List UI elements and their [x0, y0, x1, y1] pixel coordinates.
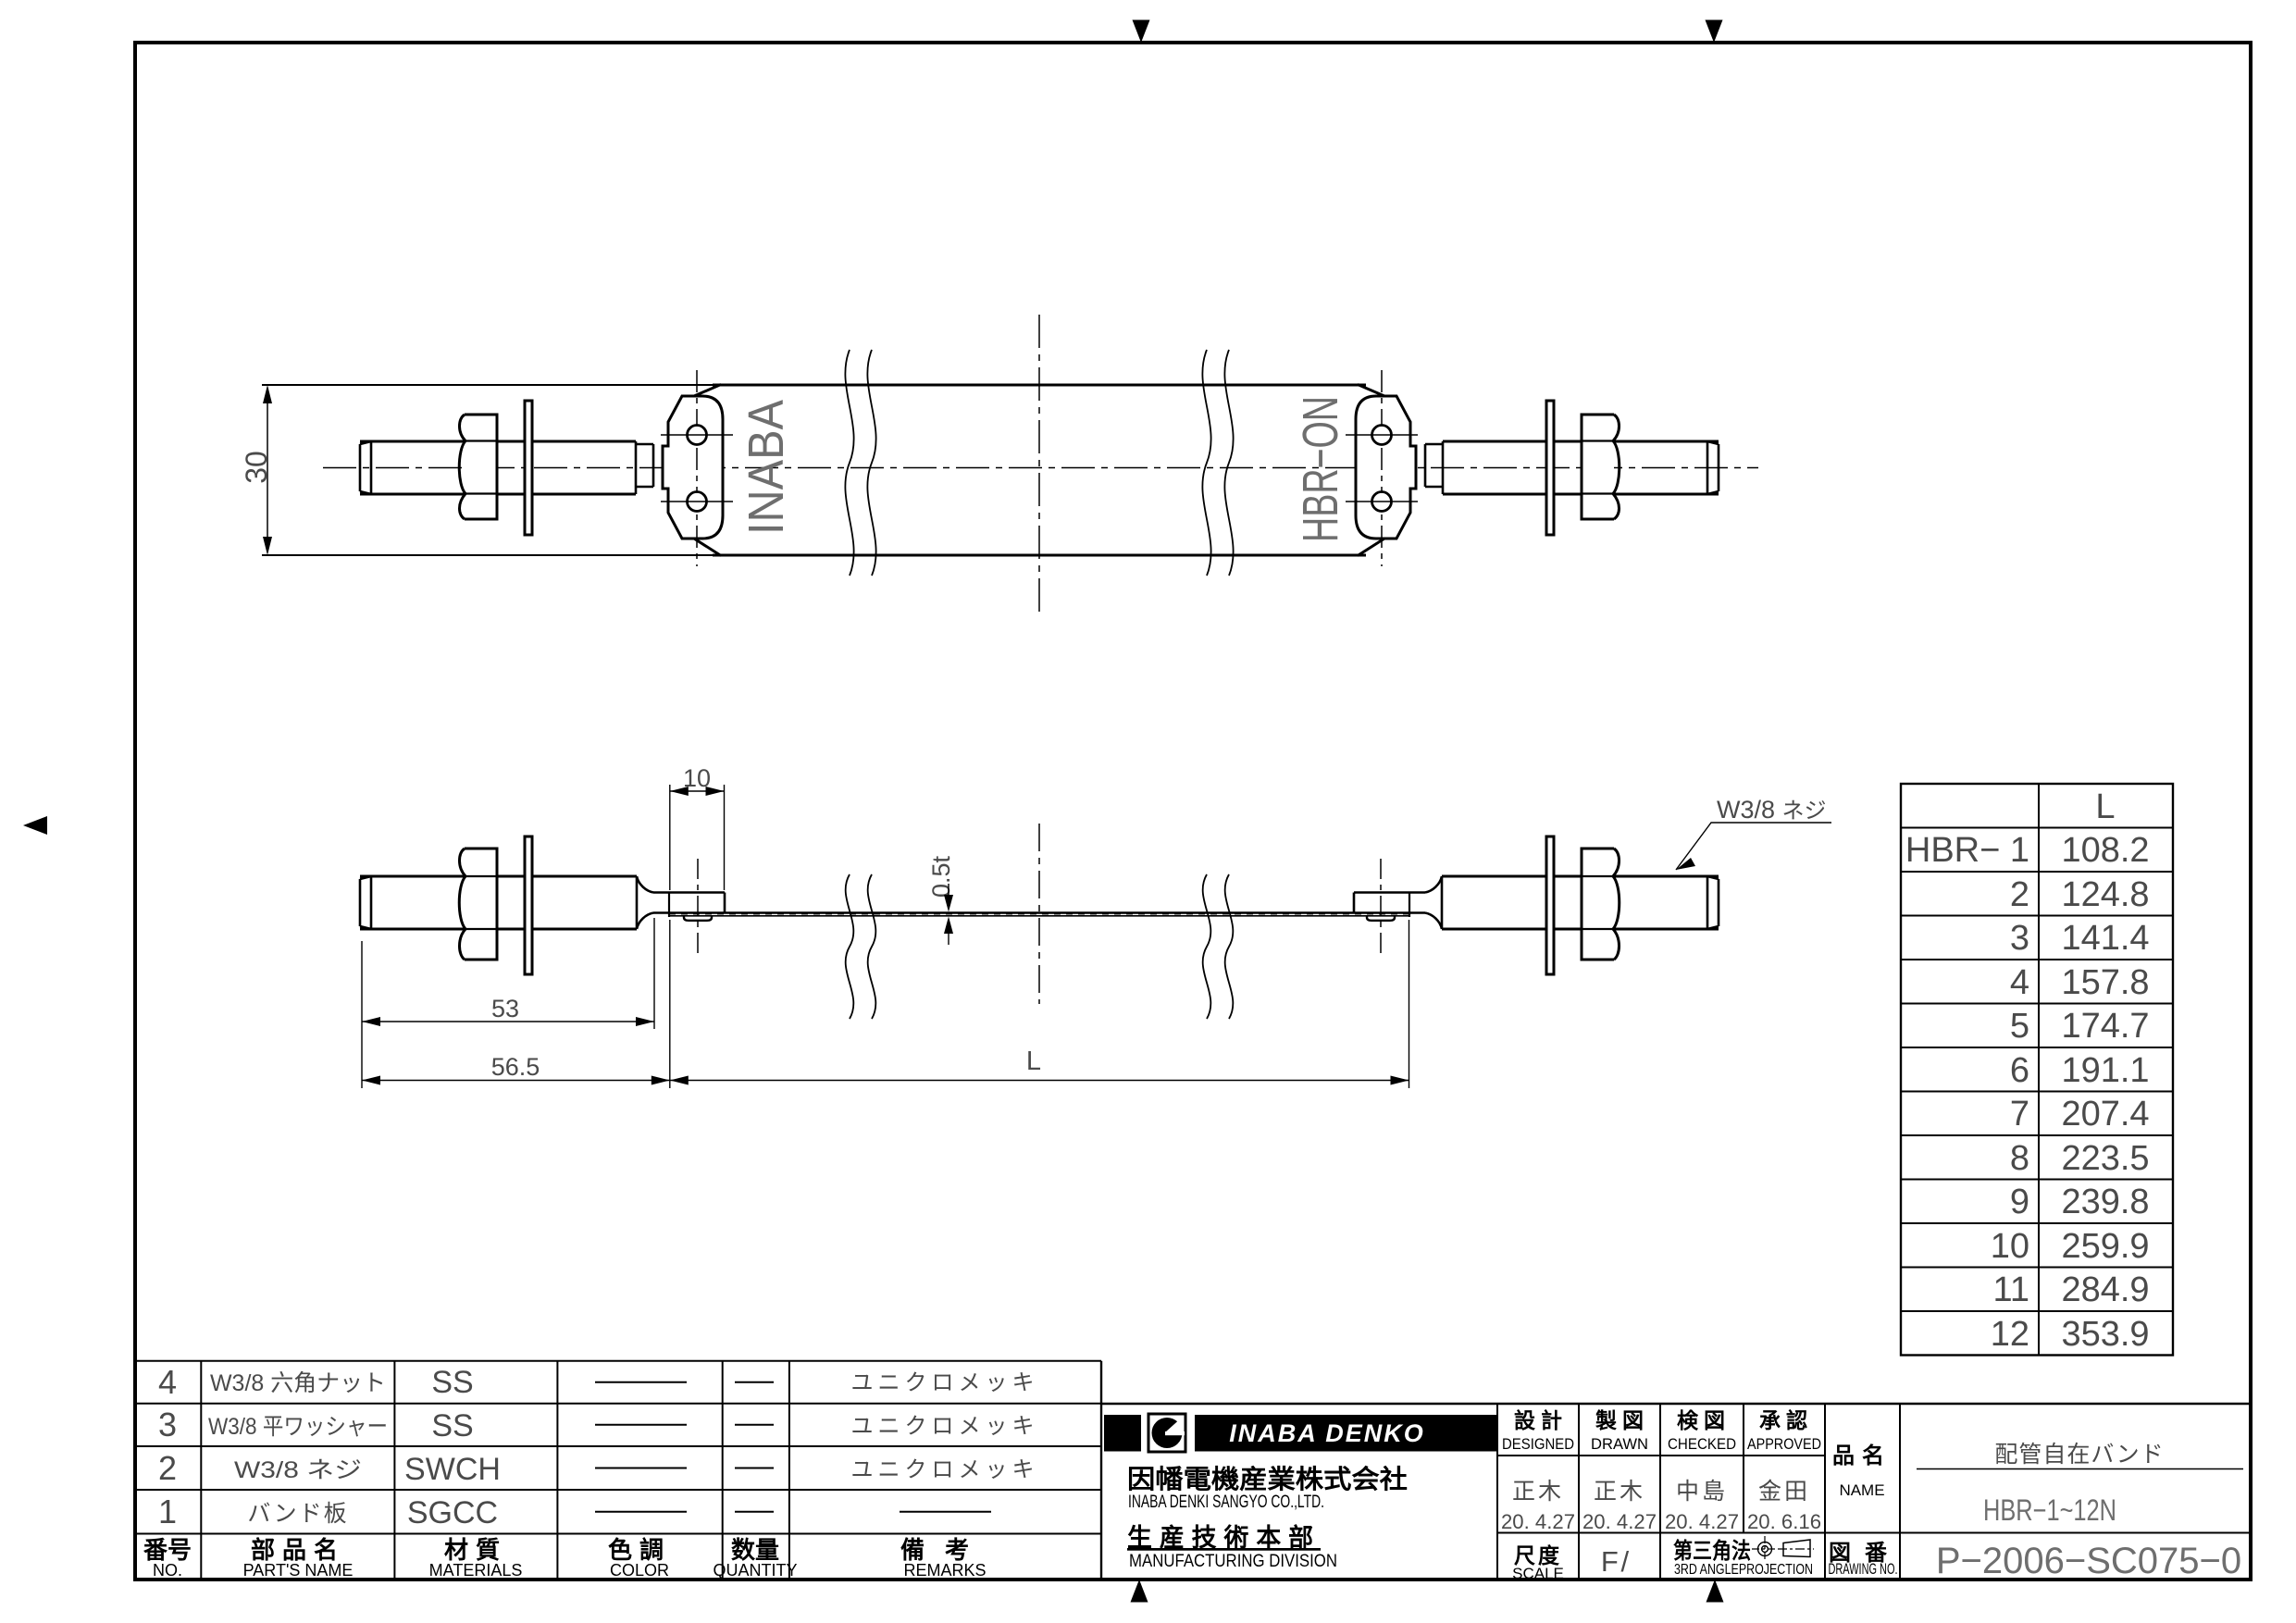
svg-text:品名: 品名 [1832, 1443, 1892, 1468]
svg-text:12: 12 [1991, 1315, 2029, 1354]
svg-text:SWCH: SWCH [404, 1452, 501, 1487]
svg-text:2: 2 [2010, 875, 2029, 914]
svg-text:W3/8 ネジ: W3/8 ネジ [1717, 796, 1827, 824]
svg-text:DESIGNED: DESIGNED [1502, 1435, 1574, 1453]
svg-text:HBR−ON: HBR−ON [1293, 396, 1348, 542]
svg-text:20. 4.27: 20. 4.27 [1665, 1510, 1739, 1533]
svg-text:1: 1 [158, 1493, 177, 1530]
svg-text:NO.: NO. [153, 1561, 182, 1580]
svg-text:配管自在バンド: 配管自在バンド [1994, 1442, 2164, 1468]
svg-text:9: 9 [2010, 1183, 2029, 1221]
svg-text:COLOR: COLOR [610, 1561, 669, 1580]
svg-text:191.1: 191.1 [2061, 1051, 2149, 1090]
svg-text:SS: SS [431, 1408, 473, 1443]
svg-text:20. 4.27: 20. 4.27 [1501, 1510, 1575, 1533]
svg-text:2: 2 [158, 1449, 177, 1487]
svg-text:SGCC: SGCC [407, 1495, 498, 1530]
svg-text:239.8: 239.8 [2061, 1183, 2149, 1221]
svg-text:207.4: 207.4 [2061, 1095, 2149, 1134]
svg-text:NAME: NAME [1839, 1481, 1884, 1499]
svg-text:4: 4 [2010, 963, 2029, 1002]
svg-text:W3/8 ネジ: W3/8 ネジ [234, 1457, 362, 1483]
svg-text:HBR−1~12N: HBR−1~12N [1983, 1493, 2116, 1527]
svg-text:6: 6 [2010, 1051, 2029, 1090]
svg-text:284.9: 284.9 [2061, 1270, 2149, 1309]
svg-text:番号: 番号 [143, 1536, 192, 1564]
svg-text:HBR− 1: HBR− 1 [1905, 831, 2029, 870]
svg-text:第三角法: 第三角法 [1673, 1538, 1751, 1564]
svg-text:QUANTITY: QUANTITY [713, 1561, 797, 1580]
svg-text:製図: 製図 [1595, 1408, 1649, 1432]
svg-text:10: 10 [683, 764, 711, 792]
svg-text:REMARKS: REMARKS [903, 1561, 986, 1580]
svg-text:3RD ANGLEPROJECTION: 3RD ANGLEPROJECTION [1674, 1562, 1813, 1578]
svg-text:DRAWING NO.: DRAWING NO. [1829, 1561, 1898, 1578]
svg-text:108.2: 108.2 [2061, 831, 2149, 870]
svg-text:INABA DENKI SANGYO CO.,LTD.: INABA DENKI SANGYO CO.,LTD. [1128, 1492, 1324, 1512]
svg-text:ユニクロメッキ: ユニクロメッキ [851, 1457, 1039, 1482]
svg-text:4: 4 [158, 1363, 177, 1401]
svg-text:56.5: 56.5 [491, 1053, 540, 1081]
svg-text:30: 30 [240, 451, 273, 484]
svg-text:正木: 正木 [1594, 1479, 1645, 1505]
svg-text:色調: 色調 [608, 1536, 671, 1564]
svg-text:223.5: 223.5 [2061, 1139, 2149, 1178]
svg-text:DRAWN: DRAWN [1591, 1435, 1648, 1453]
svg-text:MATERIALS: MATERIALS [429, 1561, 523, 1580]
svg-text:設計: 設計 [1514, 1408, 1568, 1432]
svg-text:検図: 検図 [1677, 1408, 1731, 1432]
svg-text:W3/8 平ワッシャー: W3/8 平ワッシャー [208, 1414, 388, 1440]
svg-text:10: 10 [1991, 1227, 2029, 1266]
svg-text:W3/8 六角ナット: W3/8 六角ナット [210, 1370, 386, 1396]
svg-text:承認: 承認 [1759, 1408, 1813, 1432]
svg-text:SCALE: SCALE [1512, 1565, 1564, 1582]
svg-text:8: 8 [2010, 1139, 2029, 1178]
svg-text:因幡電機産業株式会社: 因幡電機産業株式会社 [1127, 1464, 1408, 1493]
svg-text:20. 4.27: 20. 4.27 [1582, 1510, 1657, 1533]
svg-text:SS: SS [431, 1365, 473, 1400]
svg-text:157.8: 157.8 [2061, 963, 2149, 1002]
svg-text:正木: 正木 [1512, 1479, 1564, 1505]
svg-text:MANUFACTURING DIVISION: MANUFACTURING DIVISION [1129, 1552, 1337, 1571]
svg-text:金田: 金田 [1758, 1479, 1810, 1505]
svg-text:3: 3 [158, 1406, 177, 1443]
svg-text:141.4: 141.4 [2061, 919, 2149, 958]
svg-text:生産技術本部: 生産技術本部 [1127, 1523, 1321, 1552]
svg-text:中島: 中島 [1676, 1479, 1728, 1505]
svg-text:APPROVED: APPROVED [1747, 1435, 1821, 1453]
svg-text:5: 5 [2010, 1007, 2029, 1046]
svg-text:259.9: 259.9 [2061, 1227, 2149, 1266]
svg-text:ユニクロメッキ: ユニクロメッキ [851, 1370, 1039, 1395]
svg-text:53: 53 [491, 995, 519, 1022]
svg-text:備考: 備考 [900, 1536, 989, 1564]
svg-text:124.8: 124.8 [2061, 875, 2149, 914]
svg-text:3: 3 [2010, 919, 2029, 958]
svg-text:部品名: 部品名 [251, 1536, 345, 1564]
svg-text:バンド板: バンド板 [247, 1501, 348, 1527]
svg-text:INABA DENKO: INABA DENKO [1229, 1419, 1425, 1447]
svg-text:P−2006−SC075−0: P−2006−SC075−0 [1936, 1541, 2241, 1581]
svg-text:20. 6.16: 20. 6.16 [1747, 1510, 1821, 1533]
svg-text:INABA: INABA [738, 400, 794, 535]
svg-text:F /: F / [1601, 1545, 1630, 1578]
svg-text:11: 11 [1993, 1270, 2029, 1309]
svg-text:0.5t: 0.5t [927, 855, 955, 898]
svg-text:CHECKED: CHECKED [1668, 1435, 1736, 1453]
svg-text:PART'S NAME: PART'S NAME [243, 1561, 354, 1580]
svg-text:材質: 材質 [444, 1536, 507, 1564]
svg-text:数量: 数量 [731, 1536, 779, 1564]
svg-text:353.9: 353.9 [2061, 1315, 2149, 1354]
svg-text:174.7: 174.7 [2061, 1007, 2149, 1046]
svg-text:ユニクロメッキ: ユニクロメッキ [851, 1414, 1039, 1439]
svg-text:L: L [2095, 787, 2115, 826]
svg-text:L: L [1026, 1047, 1041, 1076]
svg-text:7: 7 [2010, 1095, 2029, 1134]
